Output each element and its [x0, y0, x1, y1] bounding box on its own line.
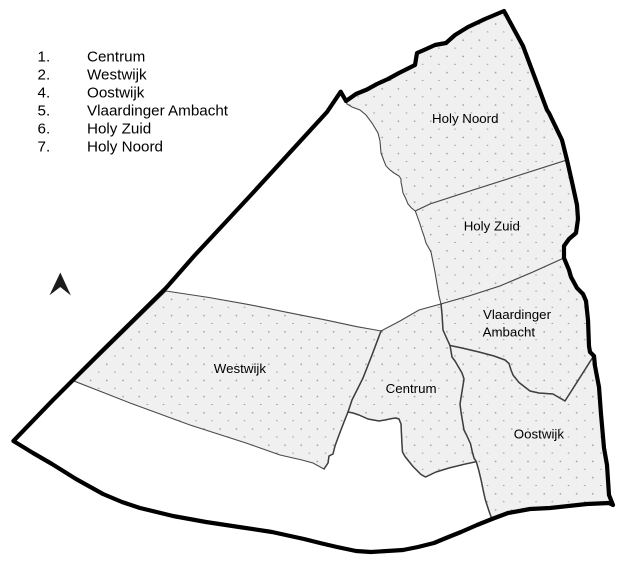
- svg-text:Oostwijk: Oostwijk: [87, 85, 145, 102]
- svg-text:Holy Zuid: Holy Zuid: [464, 219, 520, 234]
- svg-text:Holy Zuid: Holy Zuid: [87, 121, 151, 138]
- svg-text:2.: 2.: [38, 67, 51, 84]
- svg-text:5.: 5.: [38, 103, 51, 120]
- svg-text:Holy Noord: Holy Noord: [432, 111, 499, 126]
- svg-text:Holy Noord: Holy Noord: [87, 139, 163, 156]
- svg-text:Centrum: Centrum: [386, 381, 437, 396]
- svg-text:6.: 6.: [38, 121, 51, 138]
- svg-text:4.: 4.: [38, 85, 51, 102]
- svg-text:Centrum: Centrum: [87, 49, 145, 66]
- svg-text:Westwijk: Westwijk: [87, 67, 147, 84]
- svg-text:1.: 1.: [38, 49, 51, 66]
- svg-text:Ambacht: Ambacht: [483, 324, 536, 339]
- svg-text:Oostwijk: Oostwijk: [514, 427, 565, 442]
- svg-text:Vlaardinger Ambacht: Vlaardinger Ambacht: [87, 103, 229, 120]
- svg-text:Vlaardinger: Vlaardinger: [483, 307, 552, 322]
- svg-text:7.: 7.: [38, 139, 51, 156]
- svg-text:Westwijk: Westwijk: [214, 361, 267, 376]
